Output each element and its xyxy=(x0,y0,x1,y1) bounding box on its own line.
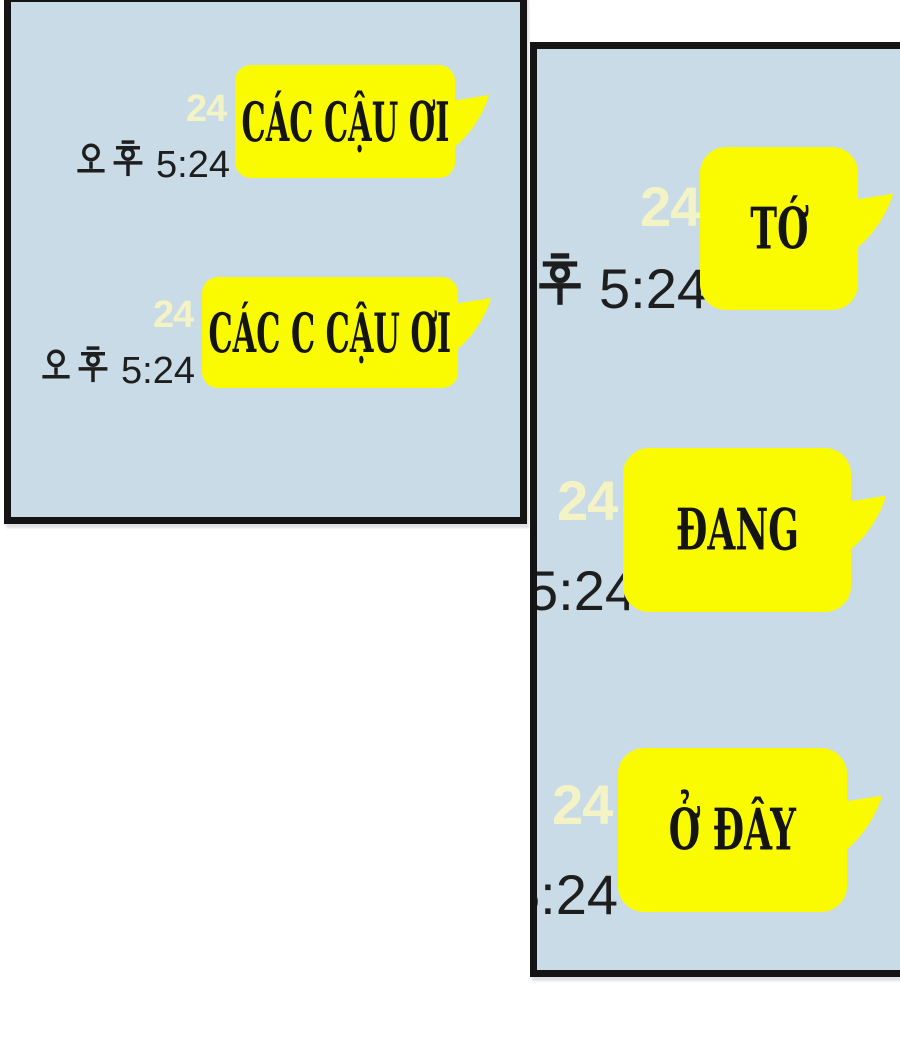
speech-bubble: TỚ xyxy=(700,147,858,310)
hangul-hu-icon xyxy=(537,253,583,306)
speech-bubble-tail-icon xyxy=(842,795,882,853)
hangul-o-icon xyxy=(530,258,531,306)
timestamp: 5:24 xyxy=(530,555,636,619)
speech-bubble-text: CÁC CẬU ƠI xyxy=(241,94,449,148)
speech-bubble-tail-icon xyxy=(846,495,886,553)
hangul-o-icon xyxy=(40,349,72,383)
timestamp-digits: 5:24 xyxy=(156,146,230,184)
speech-bubble-text: CÁC C CẬU ƠI xyxy=(209,305,452,359)
timestamp: 5:24 xyxy=(530,859,618,923)
speech-bubble: Ở ĐÂY xyxy=(618,748,847,912)
speech-bubble: ĐANG xyxy=(623,448,851,612)
faded-number-badge: 24 xyxy=(640,179,700,235)
timestamp-digits: 5:24 xyxy=(121,352,195,390)
speech-bubble-text: Ở ĐÂY xyxy=(669,801,796,859)
timestamp-digits: 5:24 xyxy=(530,867,618,923)
hangul-o-icon xyxy=(75,143,107,177)
speech-bubble-tail-icon xyxy=(453,298,491,352)
comic-panel-left: 24 5:24 CÁC CẬU ƠI 24 xyxy=(4,0,527,524)
timestamp-digits: 5:24 xyxy=(599,261,708,317)
faded-number-badge: 24 xyxy=(153,296,193,334)
speech-bubble-text: TỚ xyxy=(750,200,808,258)
speech-bubble-tail-icon xyxy=(853,193,893,251)
timestamp-digits: 5:24 xyxy=(530,563,636,619)
speech-bubble-text: ĐANG xyxy=(675,501,798,559)
hangul-hu-icon xyxy=(77,346,109,383)
speech-bubble-tail-icon xyxy=(451,95,489,149)
hangul-hu-icon xyxy=(112,140,144,177)
faded-number-badge: 24 xyxy=(186,90,226,128)
comic-panel-right: 24 5:24 TỚ 24 5: xyxy=(530,42,900,977)
faded-number-badge: 24 xyxy=(552,777,612,833)
timestamp: 5:24 xyxy=(40,346,195,390)
timestamp: 5:24 xyxy=(530,253,708,317)
speech-bubble: CÁC CẬU ƠI xyxy=(235,65,455,178)
faded-number-badge: 24 xyxy=(557,473,617,529)
speech-bubble: CÁC C CẬU ƠI xyxy=(202,277,458,388)
timestamp: 5:24 xyxy=(75,140,230,184)
